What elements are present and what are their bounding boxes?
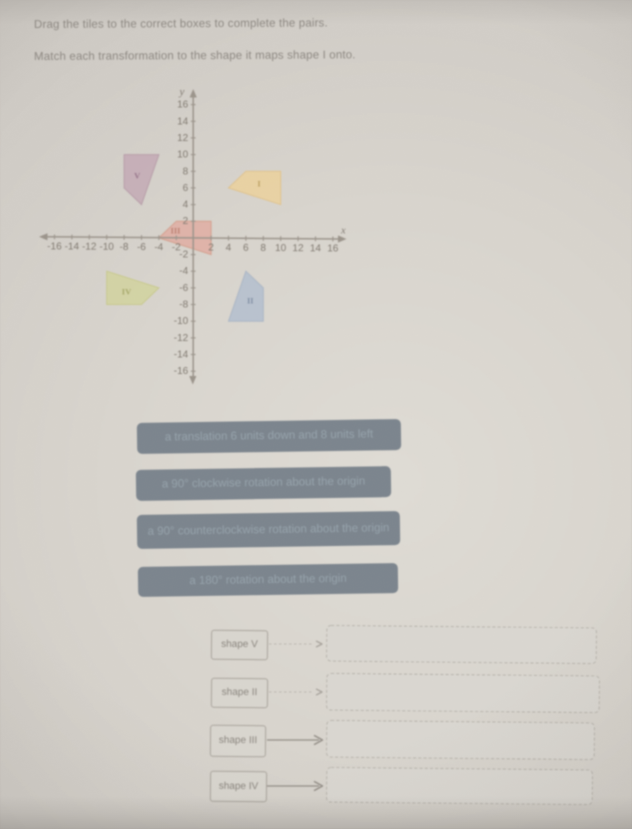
svg-text:12: 12 bbox=[292, 243, 304, 254]
svg-text:-4: -4 bbox=[154, 242, 163, 253]
svg-text:12: 12 bbox=[177, 133, 189, 144]
svg-text:8: 8 bbox=[183, 166, 189, 177]
svg-text:-16: -16 bbox=[174, 366, 189, 377]
svg-text:14: 14 bbox=[310, 243, 322, 254]
svg-text:4: 4 bbox=[183, 200, 189, 211]
svg-text:-8: -8 bbox=[120, 242, 129, 253]
svg-text:16: 16 bbox=[327, 243, 339, 254]
svg-text:III: III bbox=[171, 226, 182, 236]
svg-text:IV: IV bbox=[122, 287, 132, 297]
svg-text:10: 10 bbox=[275, 243, 287, 254]
svg-text:-12: -12 bbox=[174, 333, 189, 344]
svg-text:-10: -10 bbox=[99, 242, 114, 253]
svg-text:-10: -10 bbox=[174, 316, 189, 327]
svg-text:-12: -12 bbox=[82, 242, 97, 253]
svg-text:10: 10 bbox=[177, 150, 189, 161]
svg-text:14: 14 bbox=[177, 116, 189, 127]
svg-text:y: y bbox=[179, 86, 185, 98]
svg-text:-16: -16 bbox=[47, 241, 62, 252]
svg-text:-6: -6 bbox=[179, 283, 188, 294]
svg-text:6: 6 bbox=[243, 243, 249, 254]
svg-text:x: x bbox=[340, 225, 346, 236]
svg-text:-8: -8 bbox=[179, 300, 188, 311]
svg-text:-14: -14 bbox=[65, 241, 80, 252]
svg-text:4: 4 bbox=[226, 243, 232, 254]
svg-text:-6: -6 bbox=[137, 242, 146, 253]
svg-text:II: II bbox=[247, 296, 254, 306]
svg-text:V: V bbox=[134, 171, 141, 181]
svg-text:-2: -2 bbox=[179, 250, 188, 261]
svg-text:2: 2 bbox=[208, 243, 214, 254]
svg-text:-4: -4 bbox=[179, 266, 188, 277]
svg-text:-14: -14 bbox=[174, 350, 189, 361]
svg-text:6: 6 bbox=[183, 183, 189, 194]
svg-text:16: 16 bbox=[177, 100, 189, 111]
svg-text:8: 8 bbox=[260, 243, 266, 254]
svg-text:2: 2 bbox=[183, 216, 189, 227]
